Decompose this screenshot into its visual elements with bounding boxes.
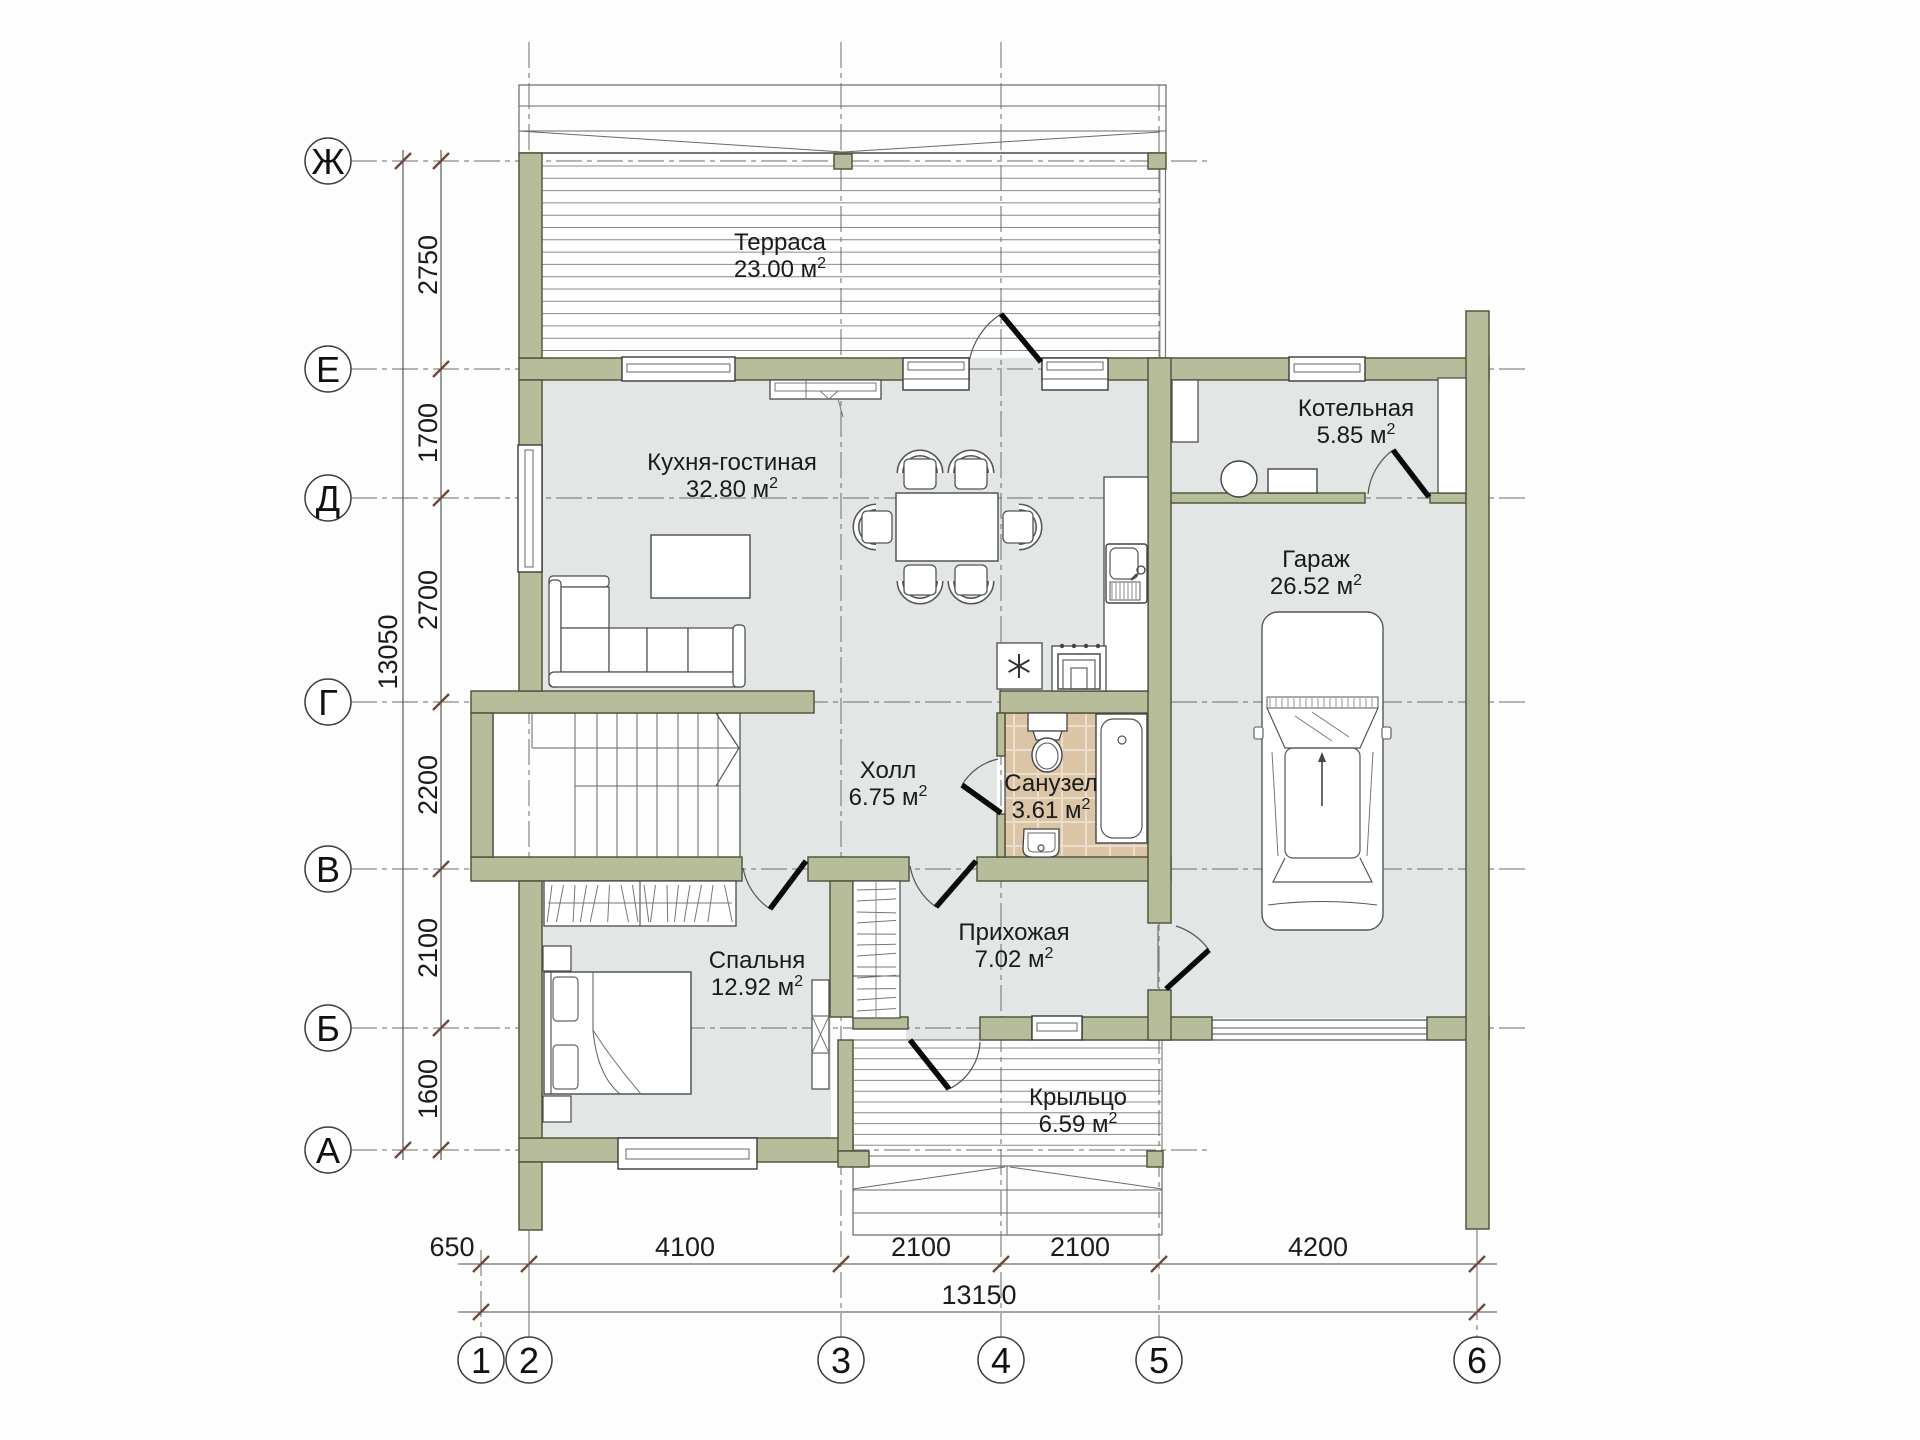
svg-text:1600: 1600 xyxy=(413,1059,443,1119)
svg-text:7.02 м2: 7.02 м2 xyxy=(975,945,1054,973)
svg-text:В: В xyxy=(316,849,340,890)
svg-text:2100: 2100 xyxy=(1050,1232,1110,1262)
svg-text:6.59 м2: 6.59 м2 xyxy=(1039,1110,1118,1138)
svg-text:13150: 13150 xyxy=(941,1280,1016,1310)
svg-text:13050: 13050 xyxy=(373,614,403,689)
svg-text:4100: 4100 xyxy=(655,1232,715,1262)
svg-text:Д: Д xyxy=(316,478,340,519)
svg-text:Холл: Холл xyxy=(860,757,917,784)
svg-text:Крыльцо: Крыльцо xyxy=(1029,1084,1127,1111)
svg-text:Гараж: Гараж xyxy=(1282,546,1350,573)
svg-text:3.61 м2: 3.61 м2 xyxy=(1012,796,1091,824)
svg-text:4200: 4200 xyxy=(1288,1232,1348,1262)
svg-text:Санузел: Санузел xyxy=(1004,770,1098,797)
svg-text:5.85 м2: 5.85 м2 xyxy=(1317,421,1396,449)
svg-text:650: 650 xyxy=(429,1232,474,1262)
svg-text:Прихожая: Прихожая xyxy=(958,919,1069,946)
svg-text:Кухня-гостиная: Кухня-гостиная xyxy=(647,449,817,476)
svg-text:12.92 м2: 12.92 м2 xyxy=(711,973,803,1001)
svg-text:1700: 1700 xyxy=(413,403,443,463)
svg-text:Г: Г xyxy=(318,682,338,723)
svg-text:6: 6 xyxy=(1467,1340,1487,1381)
svg-text:2: 2 xyxy=(519,1340,539,1381)
svg-text:Е: Е xyxy=(316,349,340,390)
svg-text:Б: Б xyxy=(316,1008,340,1049)
svg-text:3: 3 xyxy=(831,1340,851,1381)
svg-text:Терраса: Терраса xyxy=(734,229,827,256)
svg-text:2700: 2700 xyxy=(413,570,443,630)
svg-text:2100: 2100 xyxy=(891,1232,951,1262)
svg-text:Спальня: Спальня xyxy=(709,947,805,974)
svg-text:23.00 м2: 23.00 м2 xyxy=(734,255,826,283)
svg-text:4: 4 xyxy=(991,1340,1011,1381)
svg-text:Ж: Ж xyxy=(311,141,344,182)
svg-text:2200: 2200 xyxy=(413,755,443,815)
svg-text:6.75 м2: 6.75 м2 xyxy=(849,783,928,811)
svg-text:А: А xyxy=(316,1130,340,1171)
svg-text:Котельная: Котельная xyxy=(1298,395,1414,422)
svg-text:5: 5 xyxy=(1149,1340,1169,1381)
svg-text:26.52 м2: 26.52 м2 xyxy=(1270,572,1362,600)
svg-text:2750: 2750 xyxy=(413,235,443,295)
svg-text:32.80 м2: 32.80 м2 xyxy=(686,475,778,503)
svg-text:1: 1 xyxy=(471,1340,491,1381)
svg-text:2100: 2100 xyxy=(413,918,443,978)
